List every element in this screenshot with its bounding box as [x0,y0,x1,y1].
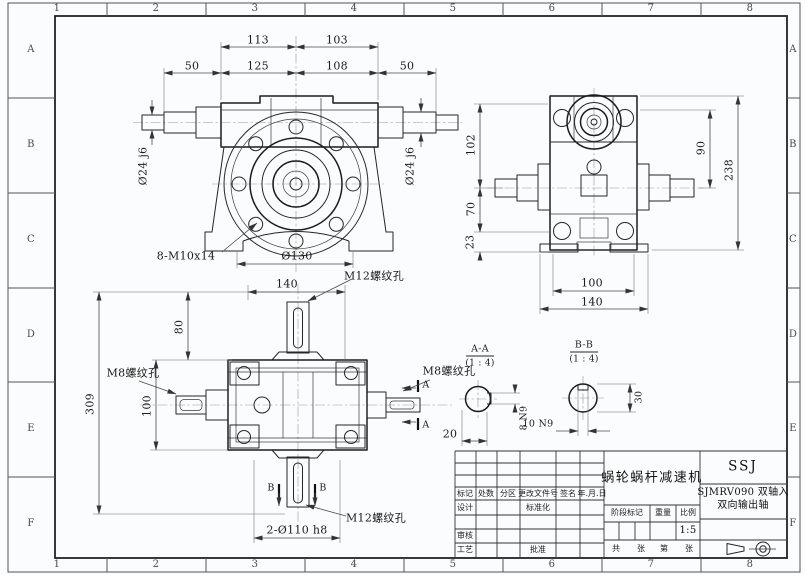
dim-102: 102 [466,134,477,156]
tb-row-approve: 批准 [530,546,546,554]
dim-flange-dia: Ø130 [281,251,312,262]
grid-row: F [27,519,34,529]
side-view [474,88,744,314]
tb-header-count: 处数 [478,490,494,498]
section-mark-a1: A [422,380,429,390]
dim-108: 108 [326,61,348,72]
tb-row-standardize: 标准化 [526,504,550,512]
section-bb [556,352,636,436]
tb-sheets-unit: 张 [637,545,645,553]
dim-50-left: 50 [185,61,200,72]
section-bb-scale: (1 : 4) [569,356,598,365]
tb-scale-value: 1:5 [680,526,697,536]
grid-row: B [27,140,35,150]
section-mark-b1: B [267,483,274,493]
grid-col: 6 [549,4,556,14]
dim-shaft-dia-right: Ø24 j6 [405,147,416,186]
tb-header-mark: 标记 [457,490,473,498]
note-m12-top: M12螺纹孔 [344,271,404,282]
dim-140-plan: 140 [276,279,298,290]
tb-row-process: 工艺 [457,546,473,554]
section-mark-b2: B [319,483,326,493]
dim-23: 23 [465,235,476,250]
grid-col: 4 [351,4,358,14]
note-bolt-holes: 8-M10x14 [157,251,216,262]
tb-model-line2: 双向输出轴 [717,501,769,511]
grid-row: E [789,424,797,434]
tb-sheet-unit2: 张 [685,545,693,553]
drawing-canvas: .o{fill:none;stroke:#1c1c1c;stroke-width… [0,0,805,575]
tb-company: SSJ [728,460,758,474]
section-aa-title: A-A [471,344,489,354]
grid-col: 7 [648,560,655,570]
grid-col: 8 [747,4,754,14]
tb-header-doc: 更改文件号 [518,490,558,498]
grid-row: B [789,140,797,150]
tb-row-design: 设计 [457,504,473,512]
note-m8-left: M8螺纹孔 [107,368,160,379]
grid-col: 4 [351,560,358,570]
drawing-sheet: .o{fill:none;stroke:#1c1c1c;stroke-width… [0,0,805,575]
dim-20: 20 [443,429,458,440]
dim-50-right: 50 [400,61,415,72]
grid-col: 1 [54,560,61,570]
grid-row: D [27,330,35,340]
tb-product-name: 蜗轮蜗杆减速机 [601,472,703,485]
grid-col: 2 [153,560,160,570]
grid-col: 1 [54,4,61,14]
grid-row: F [789,519,796,529]
tb-header-sign: 签名 [560,490,576,498]
tb-model-line1: SJMRV090 双轴入 [697,488,788,498]
dim-103: 103 [326,35,348,46]
note-m12-bottom: M12螺纹孔 [346,513,406,524]
grid-row: C [789,235,797,245]
tb-weight: 重量 [655,509,671,517]
tb-row-check: 审核 [457,532,473,540]
grid-col: 8 [747,560,754,570]
first-angle-projection-icon [727,542,776,556]
dim-238: 238 [724,159,735,181]
section-aa-scale: (1 : 4) [465,360,494,369]
grid-col: 2 [153,4,160,14]
dim-70: 70 [466,202,477,217]
dim-309: 309 [85,393,96,415]
grid-row: C [27,235,35,245]
tb-sheets-total: 共 [612,545,620,553]
dim-30: 30 [634,391,644,404]
tb-stage-mark: 阶段标记 [611,509,643,517]
dim-113: 113 [247,35,269,46]
grid-row: A [27,45,35,55]
grid-col: 3 [252,4,259,14]
dim-80: 80 [174,320,185,335]
tb-scale-label: 比例 [680,509,696,517]
grid-col: 6 [549,560,556,570]
tb-sheet-no: 第 [660,545,668,553]
grid-row: E [27,424,35,434]
dim-100-plan: 100 [142,395,153,417]
section-mark-a2: A [422,420,429,430]
section-bb-title: B-B [575,340,593,350]
dim-125: 125 [247,61,269,72]
dim-shaft-dia-left: Ø24 j6 [138,147,149,186]
tb-header-date: 年.月.日 [577,490,606,498]
grid-row: D [789,330,797,340]
dim-bore: 2-Ø110 h8 [266,525,327,536]
tb-header-zone: 分区 [500,490,516,498]
dim-140-side: 140 [581,297,603,308]
dim-key-10n9: 10 N9 [523,419,554,429]
grid-col: 7 [648,4,655,14]
dim-100-side: 100 [581,278,603,289]
grid-row: A [789,45,797,55]
dim-90: 90 [696,141,707,156]
grid-col: 5 [450,560,457,570]
grid-col: 3 [252,560,259,570]
grid-col: 5 [450,4,457,14]
